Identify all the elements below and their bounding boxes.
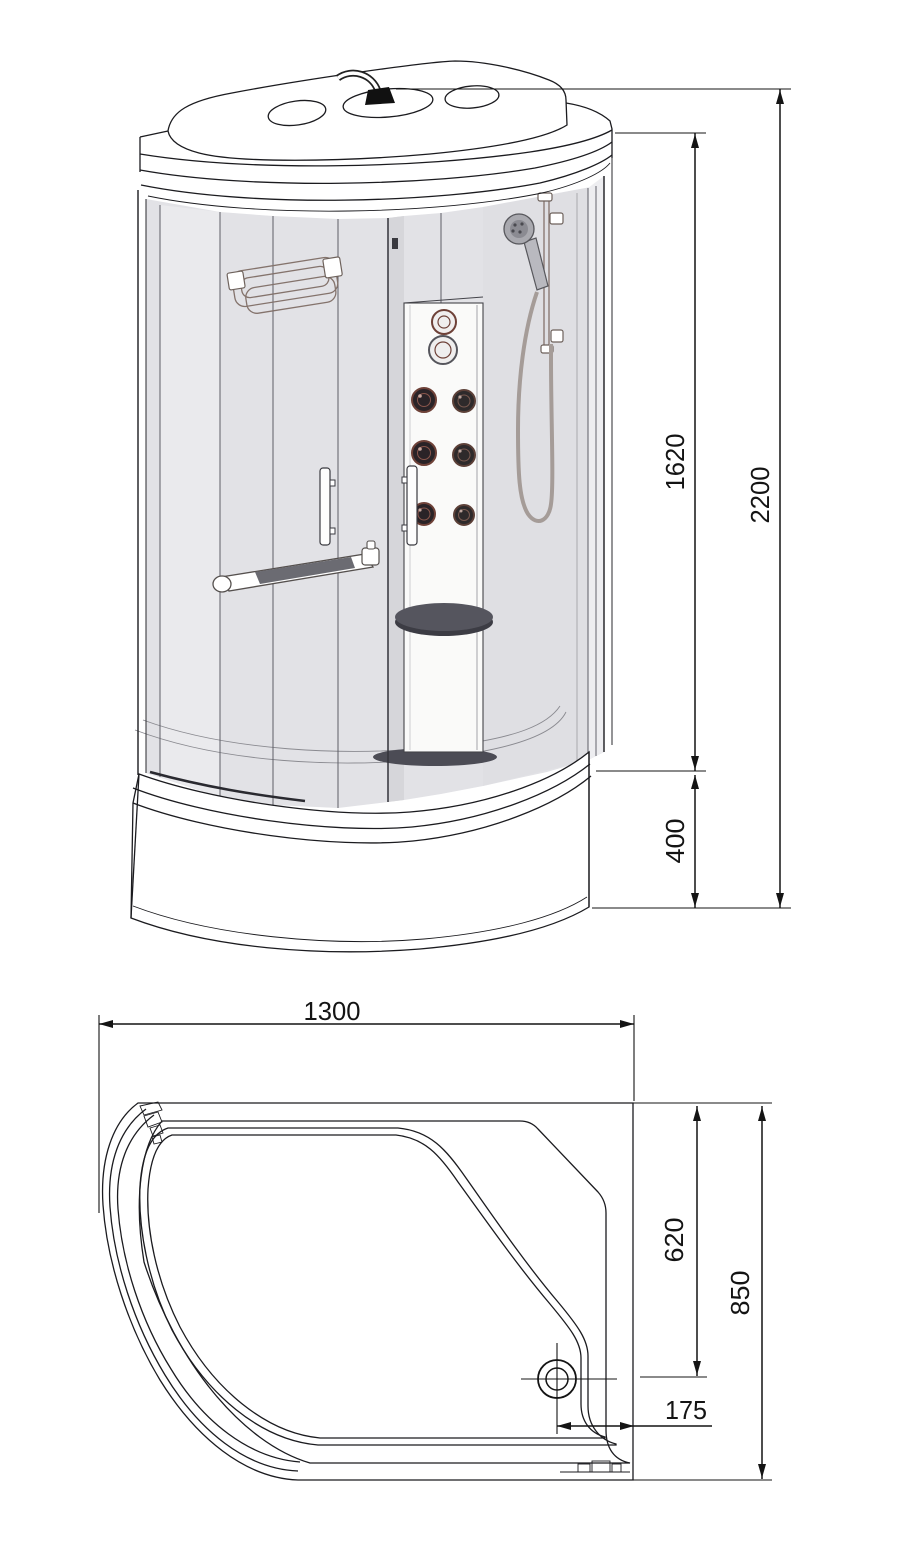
glass-panel-light [160,205,220,797]
plan-glass-curve-2 [118,1115,300,1462]
towel-rack-right-cap [323,257,343,278]
overall-width-label: 1300 [304,996,361,1026]
massage-jet [412,388,436,412]
overall-depth-label: 850 [725,1271,755,1316]
dimension-inner-height: 1620 [660,133,699,771]
rail-top-cap [538,193,552,201]
grab-bar-end-cap [213,576,231,592]
door-roller [392,238,398,249]
steam-outlet [365,87,395,105]
dimension-overall-height: 2200 [745,89,784,908]
massage-jet [412,441,436,465]
dimension-drain-depth: 620 [659,1106,701,1376]
plan-glass-curve-1 [110,1109,298,1471]
drain [521,1343,617,1434]
plan-deck-contour [139,1121,630,1463]
roof [140,61,612,211]
seat [395,603,493,636]
drain-depth-label: 620 [659,1218,689,1263]
door-glass [388,216,404,802]
control-knob [429,336,457,364]
dimension-overall-width: 1300 [99,996,634,1028]
plan-outer-outline [103,1103,633,1480]
grab-bar-bracket [362,548,379,565]
overall-height-label: 2200 [745,467,775,524]
tray-height-label: 400 [660,819,690,864]
rail-bracket [550,213,563,224]
plan-view [103,1102,633,1480]
dimension-drain-offset: 175 [557,1395,712,1430]
dimension-tray-height: 400 [660,775,699,908]
towel-rack-left-cap [227,271,245,290]
drawing-page: 1620 2200 400 [0,0,905,1541]
massage-jet [454,505,474,525]
hose-bracket [551,330,563,342]
dimension-overall-depth: 850 [725,1106,766,1479]
plan-basin-outer [140,1128,616,1445]
inner-height-label: 1620 [660,434,690,491]
roof-vent-right [444,84,500,111]
massage-jet [453,390,475,412]
drain-offset-label: 175 [665,1395,707,1425]
control-knob [432,310,456,334]
front-elevation-view [131,61,612,952]
massage-jet [453,444,475,466]
shower-cabin-technical-drawing: 1620 2200 400 [0,0,905,1541]
